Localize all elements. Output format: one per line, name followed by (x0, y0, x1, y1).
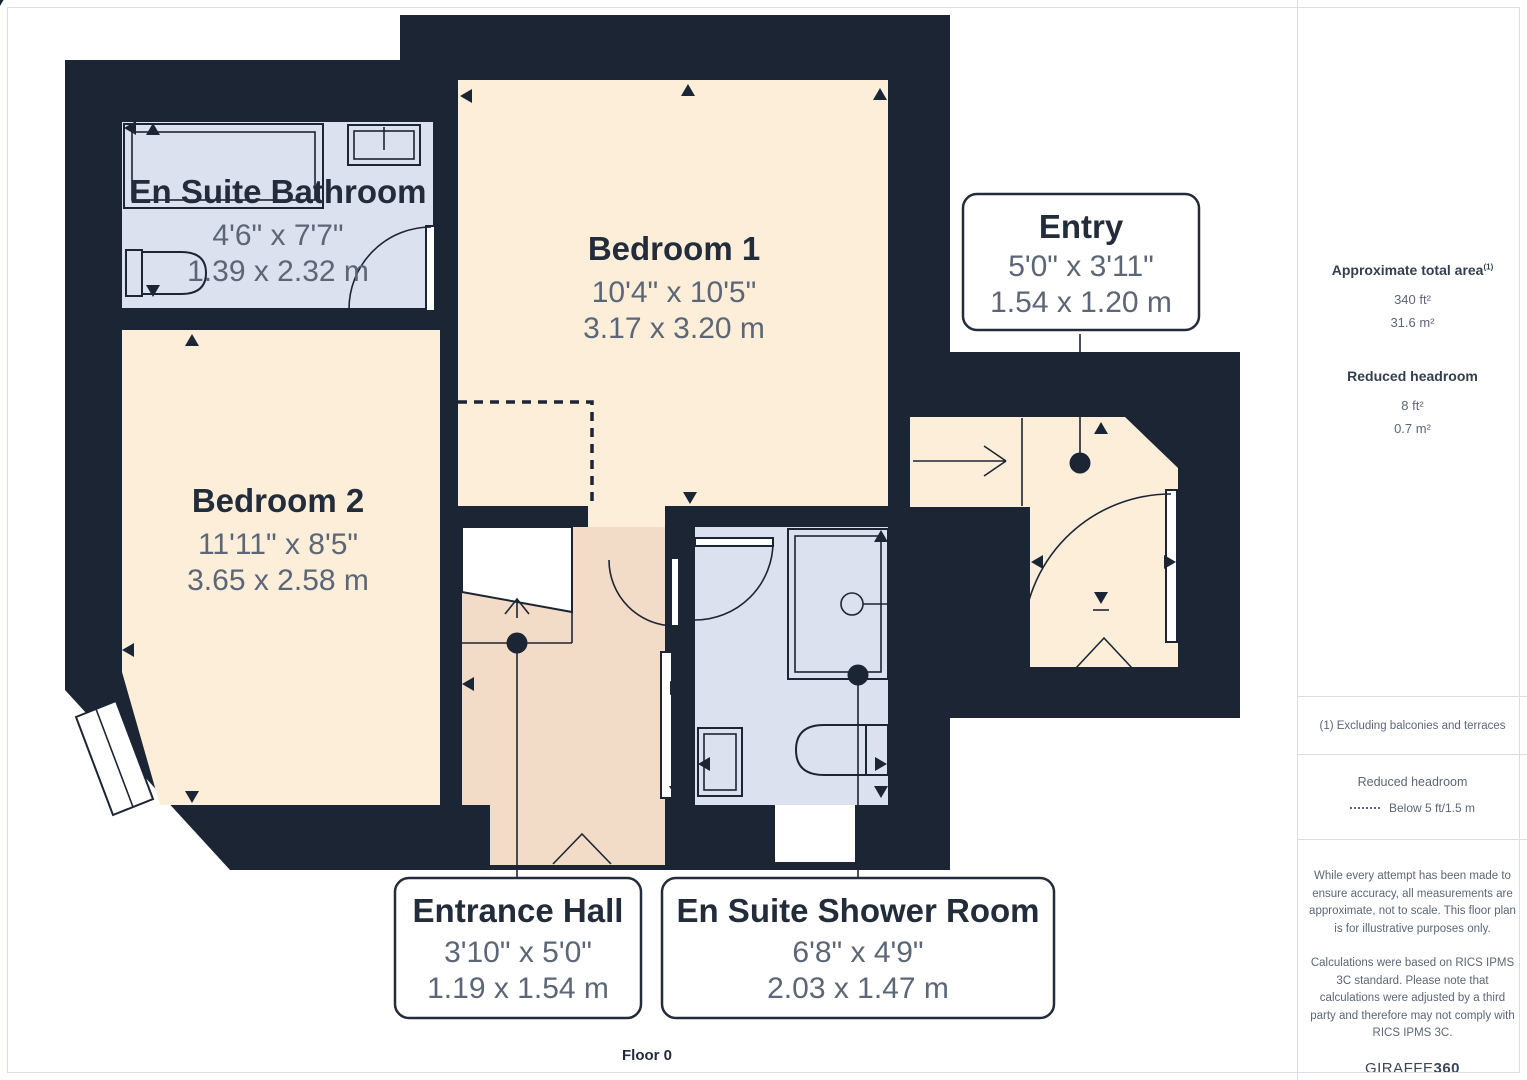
svg-text:11'11" x 8'5": 11'11" x 8'5" (198, 528, 358, 561)
bedroom1-hall-opening (588, 506, 665, 528)
info-sidebar: Approximate total area(1) 340 ft² 31.6 m… (1297, 0, 1527, 1080)
svg-text:En Suite Bathroom: En Suite Bathroom (129, 173, 426, 210)
total-area-ft: 340 ft² (1298, 288, 1527, 311)
reduced-headroom-m: 0.7 m² (1298, 417, 1527, 440)
svg-text:3.17 x 3.20 m: 3.17 x 3.20 m (583, 312, 765, 345)
disclaimer-rics: Calculations were based on RICS IPMS 3C … (1309, 955, 1516, 1043)
floorplan-page: En Suite Bathroom 4'6" x 7'7" 1.39 x 2.3… (0, 0, 1527, 1080)
svg-text:Bedroom 1: Bedroom 1 (588, 230, 760, 267)
total-area-m: 31.6 m² (1298, 311, 1527, 334)
footnote-text: (1) Excluding balconies and terraces (1319, 720, 1505, 732)
svg-text:Entry: Entry (1039, 208, 1124, 245)
total-area-heading: Approximate total area(1) (1298, 262, 1527, 278)
svg-text:1.39 x 2.32 m: 1.39 x 2.32 m (187, 255, 369, 288)
label-bedroom-2: Bedroom 2 11'11" x 8'5" 3.65 x 2.58 m (187, 482, 369, 597)
hall-shower-door (661, 652, 672, 798)
svg-text:1.19 x 1.54 m: 1.19 x 1.54 m (427, 972, 609, 1005)
svg-text:2.03 x 1.47 m: 2.03 x 1.47 m (767, 972, 949, 1005)
callout-entrance-hall: Entrance Hall 3'10" x 5'0" 1.19 x 1.54 m (395, 878, 641, 1018)
legend: Reduced headroom Below 5 ft/1.5 m (1298, 755, 1527, 840)
dotted-line-sample (1350, 807, 1380, 809)
svg-text:1.54 x 1.20 m: 1.54 x 1.20 m (990, 286, 1172, 319)
svg-text:En Suite Shower Room: En Suite Shower Room (676, 892, 1039, 929)
svg-text:10'4" x 10'5": 10'4" x 10'5" (592, 276, 757, 309)
svg-text:6'8" x 4'9": 6'8" x 4'9" (792, 936, 923, 969)
disclaimer-accuracy: While every attempt has been made to ens… (1309, 868, 1516, 938)
callout-entry: Entry 5'0" x 3'11" 1.54 x 1.20 m (963, 194, 1199, 330)
svg-text:4'6" x 7'7": 4'6" x 7'7" (212, 219, 343, 252)
svg-text:Bedroom 2: Bedroom 2 (192, 482, 364, 519)
callout-shower-room: En Suite Shower Room 6'8" x 4'9" 2.03 x … (662, 878, 1054, 1018)
svg-text:5'0" x 3'11": 5'0" x 3'11" (1008, 250, 1154, 283)
giraffe360-logo: GIRAFFE360 (1309, 1060, 1516, 1078)
shower-room-doorway-gap (775, 805, 855, 862)
area-summary: Approximate total area(1) 340 ft² 31.6 m… (1298, 0, 1527, 697)
legend-item: Below 5 ft/1.5 m (1389, 801, 1475, 815)
floor-label: Floor 0 (622, 1047, 672, 1064)
label-bedroom-1: Bedroom 1 10'4" x 10'5" 3.17 x 3.20 m (583, 230, 765, 345)
legend-title: Reduced headroom (1298, 775, 1527, 789)
floorplan-svg: En Suite Bathroom 4'6" x 7'7" 1.39 x 2.3… (0, 0, 1297, 1080)
reduced-headroom-heading: Reduced headroom (1298, 368, 1527, 384)
svg-text:Entrance Hall: Entrance Hall (413, 892, 624, 929)
reduced-headroom-ft: 8 ft² (1298, 394, 1527, 417)
svg-text:3.65 x 2.58 m: 3.65 x 2.58 m (187, 564, 369, 597)
svg-text:3'10" x 5'0": 3'10" x 5'0" (444, 936, 592, 969)
area-footnote: (1) Excluding balconies and terraces (1298, 697, 1527, 755)
disclaimer: While every attempt has been made to ens… (1298, 840, 1527, 1080)
floorplan-canvas: En Suite Bathroom 4'6" x 7'7" 1.39 x 2.3… (0, 0, 1297, 1080)
footnote-marker: (1) (1483, 262, 1493, 271)
